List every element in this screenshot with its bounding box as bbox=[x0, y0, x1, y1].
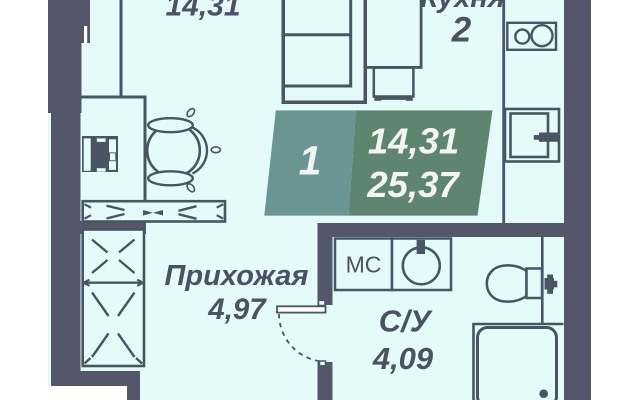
svg-text:4,97: 4,97 bbox=[207, 293, 267, 326]
svg-text:14,31: 14,31 bbox=[368, 121, 459, 162]
svg-text:Прихожая: Прихожая bbox=[165, 260, 309, 292]
svg-text:4,09: 4,09 bbox=[372, 341, 434, 376]
svg-text:С/У: С/У bbox=[379, 304, 433, 339]
svg-text:МС: МС bbox=[346, 252, 382, 278]
svg-text:14,31: 14,31 bbox=[165, 0, 240, 23]
svg-text:1: 1 bbox=[299, 137, 322, 183]
svg-text:2: 2 bbox=[451, 11, 472, 50]
svg-text:25,37: 25,37 bbox=[366, 164, 460, 205]
